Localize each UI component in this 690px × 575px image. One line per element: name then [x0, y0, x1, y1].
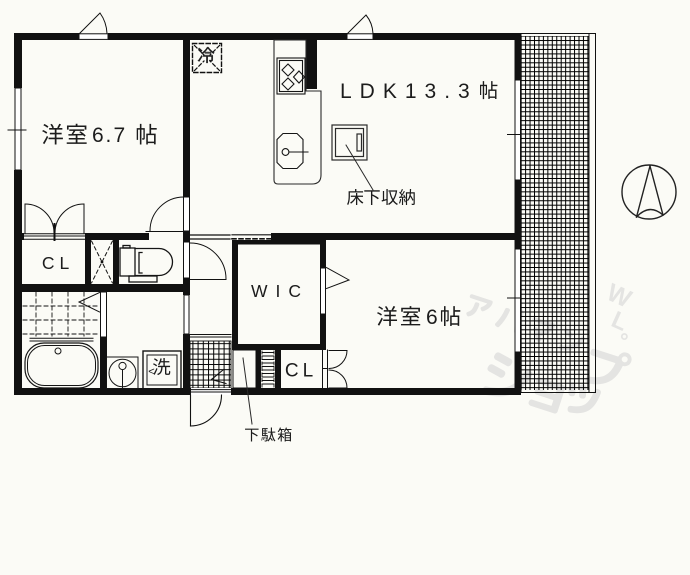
svg-text:CL: CL: [42, 253, 74, 273]
svg-text:<: <: [148, 366, 154, 378]
svg-text:WIC: WIC: [251, 281, 309, 301]
svg-text:CL: CL: [285, 361, 317, 382]
svg-text:6: 6: [426, 306, 438, 329]
svg-text:.: .: [106, 124, 112, 147]
svg-text:6: 6: [92, 124, 104, 147]
svg-text:7: 7: [114, 124, 126, 147]
svg-text:LDK13.3: LDK13.3: [340, 80, 478, 103]
